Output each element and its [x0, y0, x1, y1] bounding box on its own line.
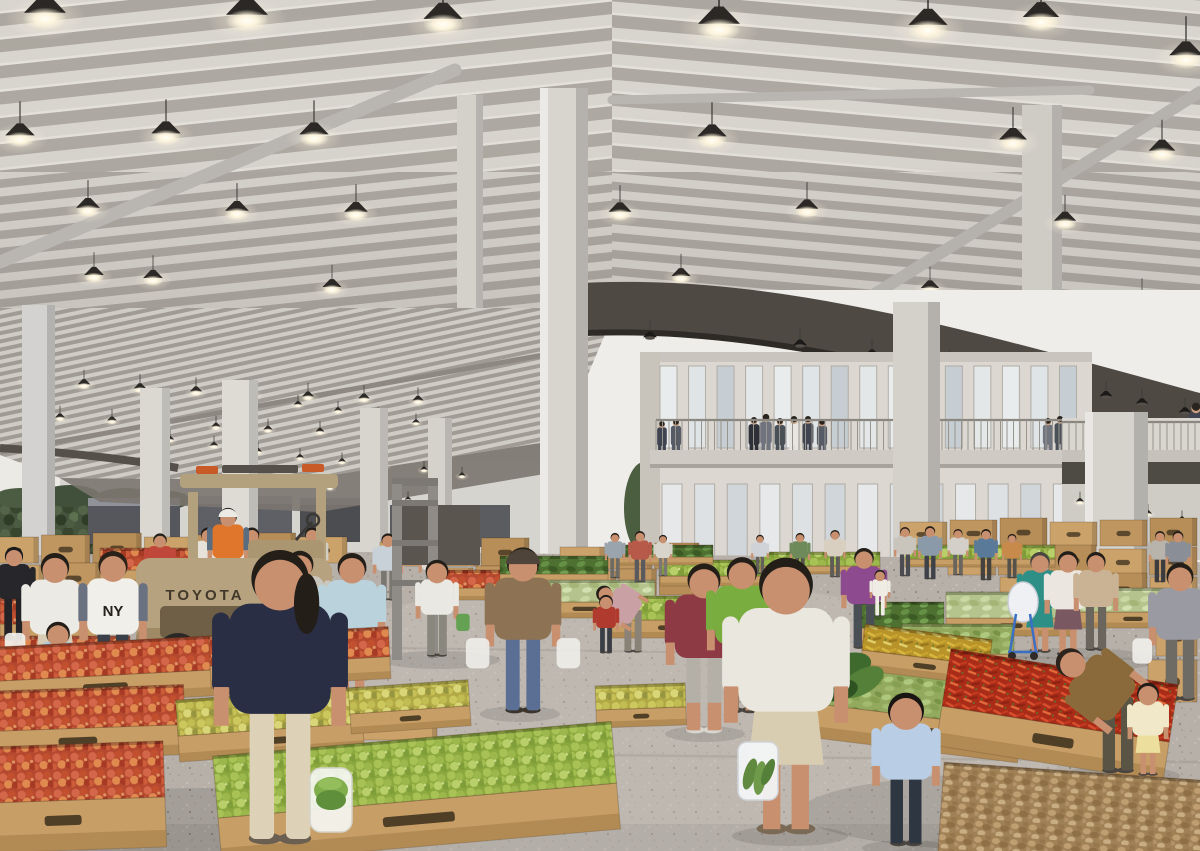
column: [140, 388, 170, 560]
wooden-box: [1100, 520, 1147, 546]
window: [831, 366, 848, 448]
produce-crate: [0, 741, 167, 851]
building-cornice: [640, 352, 1092, 362]
produce-crate: [348, 680, 471, 734]
bag-cucumbers: [738, 742, 778, 800]
sweatshirt-print-text: NY: [103, 603, 124, 620]
scene-canvas: Covered fruit and vegetable market hall …: [0, 0, 1200, 851]
window: [689, 366, 706, 448]
balcony-slab: [650, 450, 1092, 464]
window: [974, 366, 991, 448]
window: [860, 366, 877, 448]
window: [1002, 366, 1019, 448]
market-hall-rendering: Covered fruit and vegetable market hall …: [0, 0, 1200, 851]
bag-green-beans: [310, 768, 352, 832]
window: [945, 366, 962, 448]
wooden-box: [1050, 522, 1097, 546]
window: [717, 366, 734, 448]
forklift-brand-text: TOYOTA: [165, 587, 244, 604]
balcony-slab-shadow: [650, 464, 1092, 468]
wooden-box: [1000, 518, 1047, 546]
